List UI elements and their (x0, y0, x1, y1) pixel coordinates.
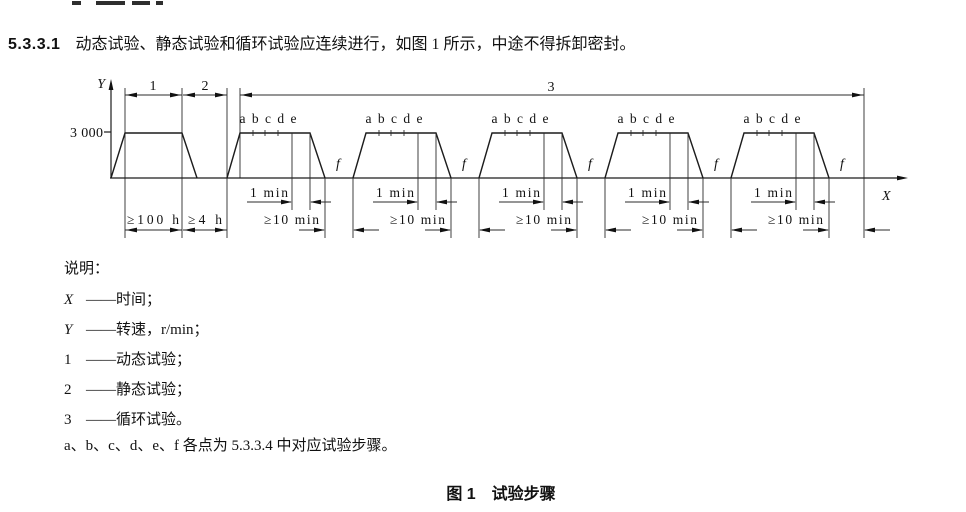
dynamic-test-trapezoid (111, 133, 197, 178)
point-f-label: f (336, 157, 342, 172)
point-f-label: f (588, 157, 594, 172)
arrowhead (852, 93, 863, 98)
static-duration-label: ≥4 h (188, 212, 222, 227)
arrowhead (864, 228, 875, 233)
arrowhead (688, 200, 699, 205)
arrowhead (566, 228, 577, 233)
ramp-duration-label: 1 min (376, 185, 414, 200)
dynamic-duration-label: ≥100 h (127, 212, 179, 227)
pause-duration-label: ≥10 min (642, 212, 697, 227)
test-cycle: a b c d ef1 min≥10 min (353, 111, 505, 238)
test-cycle: a b c d ef1 min≥10 min (227, 111, 379, 238)
legend-item-term: 1 (64, 352, 86, 369)
cycle-points-label: a b c d e (492, 111, 549, 126)
point-f-label: f (462, 157, 468, 172)
arrowhead (731, 228, 742, 233)
document-page: 5.3.3.1动态试验、静态试验和循环试验应连续进行，如图 1 所示，中途不得拆… (0, 0, 966, 512)
legend-item: Y——转速，r/min； (64, 322, 209, 339)
cycle-points-label: a b c d e (618, 111, 675, 126)
cycle-points-label: a b c d e (240, 111, 297, 126)
arrowhead (126, 228, 137, 233)
arrowhead (440, 228, 451, 233)
figure-caption: 图 1 试验步骤 (0, 480, 966, 504)
test-cycle: a b c d ef1 min≥10 min (731, 111, 890, 238)
test-cycle: a b c d ef1 min≥10 min (605, 111, 757, 238)
pause-duration-label: ≥10 min (768, 212, 823, 227)
point-f-label: f (840, 157, 846, 172)
arrowhead (109, 79, 114, 90)
test-cycle: a b c d ef1 min≥10 min (479, 111, 631, 238)
arrowhead (215, 93, 226, 98)
legend-item-def: ——动态试验； (86, 352, 191, 368)
arrowhead (407, 200, 418, 205)
cycle-points-label: a b c d e (744, 111, 801, 126)
legend-item: X——时间； (64, 292, 161, 309)
legend-item-def: ——转速，r/min； (86, 322, 209, 338)
arrowhead (562, 200, 573, 205)
point-f-label: f (714, 157, 720, 172)
ramp-duration-label: 1 min (502, 185, 540, 200)
legend-item: 1——动态试验； (64, 352, 191, 369)
arrowhead (170, 93, 181, 98)
arrowhead (314, 228, 325, 233)
arrowhead (281, 200, 292, 205)
arrowhead (170, 228, 181, 233)
legend-item-def: ——静态试验； (86, 382, 191, 398)
arrowhead (818, 228, 829, 233)
legend-item: 2——静态试验； (64, 382, 191, 399)
pause-duration-label: ≥10 min (516, 212, 571, 227)
legend-note: a、b、c、d、e、f 各点为 5.3.3.4 中对应试验步骤。 (64, 438, 396, 455)
axes (104, 84, 903, 178)
arrowhead (659, 200, 670, 205)
dim1-label: 1 (150, 79, 157, 94)
arrowhead (897, 176, 908, 181)
dim3-label: 3 (548, 80, 555, 95)
legend-item-def: ——循环试验。 (86, 412, 191, 428)
arrowhead (605, 228, 616, 233)
dimension-arrowheads (109, 79, 908, 232)
arrowhead (533, 200, 544, 205)
ramp-duration-label: 1 min (628, 185, 666, 200)
legend-title: 说明： (64, 261, 109, 278)
pause-duration-label: ≥10 min (390, 212, 445, 227)
legend-item-term: X (64, 292, 86, 309)
arrowhead (241, 93, 252, 98)
arrowhead (126, 93, 137, 98)
arrowhead (436, 200, 447, 205)
cycle-points-label: a b c d e (366, 111, 423, 126)
ramp-duration-label: 1 min (250, 185, 288, 200)
pause-duration-label: ≥10 min (264, 212, 319, 227)
cycle-test-region: a b c d ef1 min≥10 mina b c d ef1 min≥10… (227, 111, 890, 238)
arrowhead (310, 200, 321, 205)
arrowhead (814, 200, 825, 205)
legend-item-def: ——时间； (86, 292, 161, 308)
legend-item-term: 2 (64, 382, 86, 399)
y-tick-value: 3 000 (70, 126, 103, 141)
arrowhead (215, 228, 226, 233)
arrowhead (692, 228, 703, 233)
legend-item: 3——循环试验。 (64, 412, 191, 429)
arrowhead (785, 200, 796, 205)
legend-item-term: 3 (64, 412, 86, 429)
arrowhead (479, 228, 490, 233)
dim2-label: 2 (202, 79, 209, 94)
figure-diagram: Y X 3 000 1 2 3 ≥100 h ≥4 h a b c d ef1 … (0, 0, 966, 512)
arrowhead (184, 93, 195, 98)
legend-item-term: Y (64, 322, 86, 339)
arrowhead (353, 228, 364, 233)
y-axis-label: Y (97, 77, 107, 92)
ramp-duration-label: 1 min (754, 185, 792, 200)
x-axis-label: X (881, 189, 891, 204)
arrowhead (184, 228, 195, 233)
